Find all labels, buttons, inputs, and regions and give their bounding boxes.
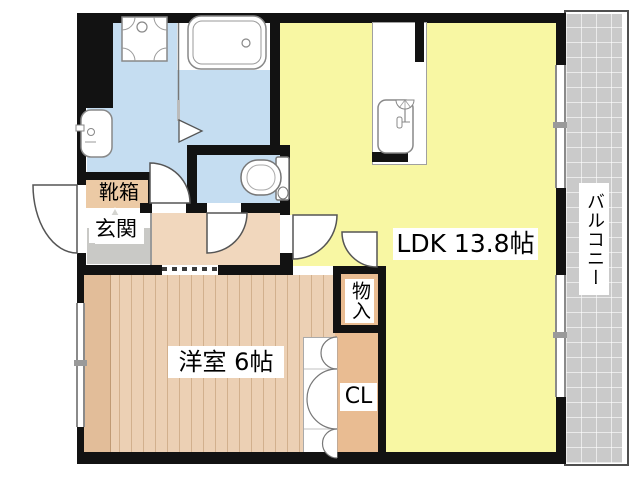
wall-bathroom-right bbox=[270, 13, 280, 150]
ldk-balcony-window-1-latch bbox=[553, 122, 567, 128]
wall-western-left-lower bbox=[77, 427, 84, 454]
wall-toilet-left bbox=[187, 145, 197, 213]
western-room-edge-plank bbox=[84, 275, 111, 458]
balcony-label: バルコニー bbox=[579, 183, 609, 295]
shoe-box-label: 靴箱 bbox=[92, 179, 146, 205]
closet-label: CL bbox=[340, 383, 377, 411]
wall-western-left-upper bbox=[77, 275, 84, 303]
ldk-label: LDK 13.8帖 bbox=[393, 228, 538, 260]
sliding-door-dashes bbox=[162, 267, 218, 271]
toilet-door-threshold bbox=[207, 203, 241, 213]
wall-bottom bbox=[77, 452, 566, 464]
front-door-swing bbox=[33, 185, 77, 253]
wall-east-b bbox=[556, 188, 566, 275]
bathroom-floor bbox=[177, 70, 280, 147]
floor-plan: 靴箱 玄関 洋室 6帖 LDK 13.8帖 物入 CL バルコニー bbox=[0, 0, 640, 477]
entrance-hall-step-line bbox=[150, 213, 152, 265]
western-room-label: 洋室 6帖 bbox=[168, 346, 284, 378]
wall-toilet-bottom-right bbox=[241, 203, 290, 213]
ldk-floor-lower bbox=[386, 266, 566, 462]
wall-closet-right bbox=[378, 333, 386, 458]
wall-top bbox=[77, 13, 566, 23]
ldk-door-threshold bbox=[280, 215, 293, 253]
wall-east-a bbox=[556, 13, 566, 65]
wall-left-block bbox=[77, 13, 113, 108]
ldk-balcony-window-2-latch bbox=[553, 332, 567, 338]
wall-kitchen-stub-bottom bbox=[372, 152, 408, 162]
closet-door-strip bbox=[303, 337, 337, 458]
storage-label: 物入 bbox=[345, 279, 374, 323]
wall-hall-bottom-right bbox=[218, 265, 293, 275]
washroom-door-threshold bbox=[152, 203, 186, 213]
wall-hall-bottom-left bbox=[77, 265, 162, 275]
western-room-window-latch bbox=[74, 360, 87, 366]
entrance-label: 玄関 bbox=[89, 215, 143, 243]
wall-kitchen-stub-top bbox=[415, 22, 424, 62]
wall-east-c bbox=[556, 397, 566, 452]
wall-toilet-bottom-left bbox=[197, 203, 207, 213]
entrance-tataki bbox=[87, 244, 152, 264]
